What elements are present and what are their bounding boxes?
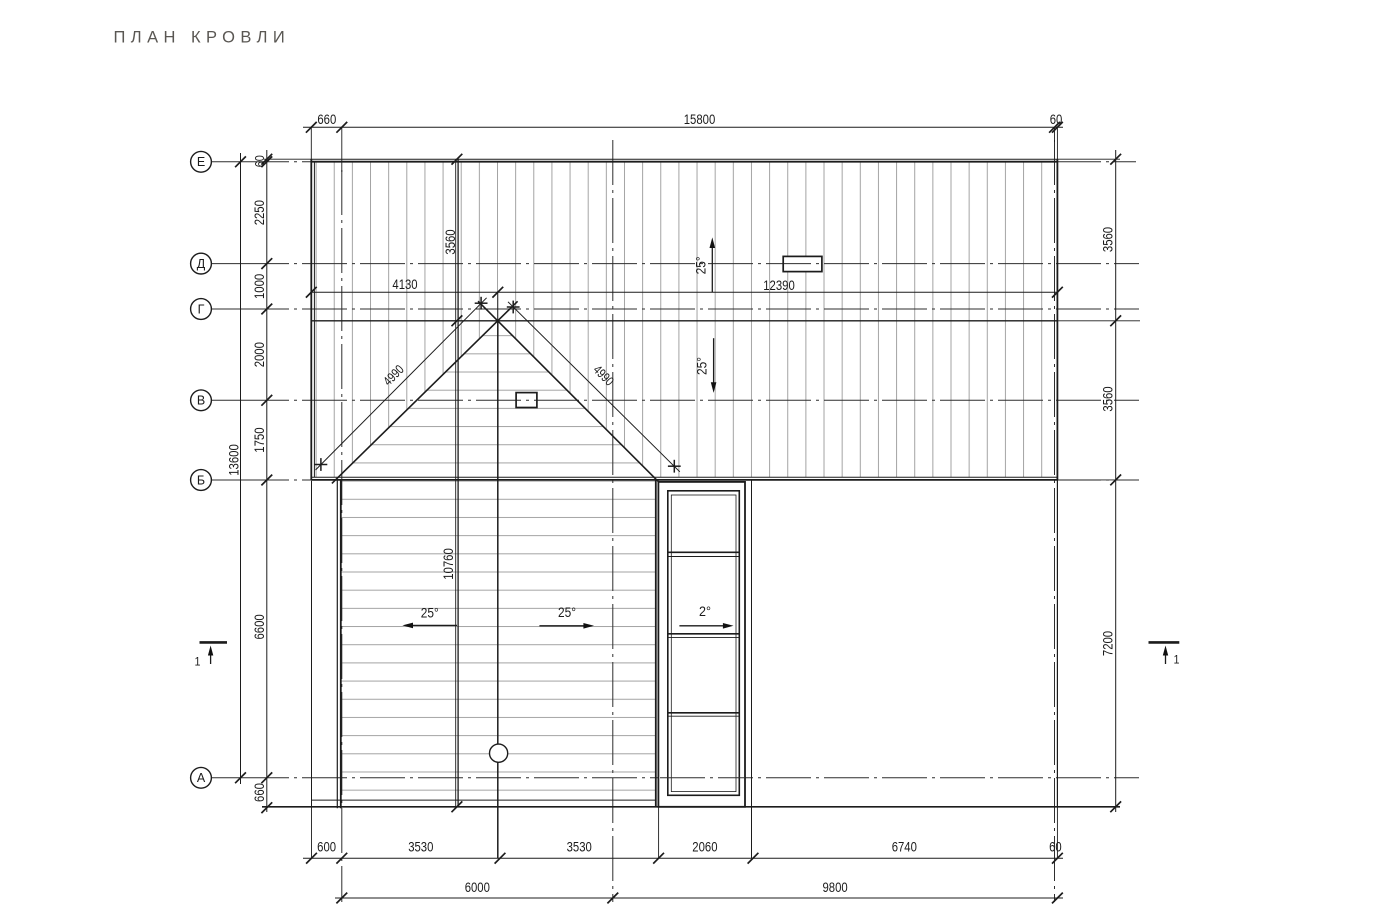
svg-text:1000: 1000 (251, 274, 267, 299)
svg-text:1750: 1750 (251, 427, 267, 452)
svg-text:600: 600 (317, 839, 336, 855)
svg-text:12390: 12390 (763, 277, 795, 293)
svg-text:Г: Г (198, 302, 205, 316)
svg-text:3530: 3530 (408, 839, 433, 855)
svg-text:25°: 25° (693, 357, 709, 375)
svg-text:1: 1 (195, 655, 201, 669)
svg-text:25°: 25° (421, 604, 439, 620)
svg-text:9800: 9800 (823, 879, 848, 895)
svg-text:Е: Е (197, 155, 205, 169)
svg-text:3560: 3560 (1099, 386, 1115, 411)
svg-text:660: 660 (251, 783, 267, 802)
svg-text:2°: 2° (699, 603, 711, 619)
svg-text:6000: 6000 (465, 879, 490, 895)
svg-text:2250: 2250 (251, 200, 267, 225)
svg-text:ПЛАН КРОВЛИ: ПЛАН КРОВЛИ (114, 29, 291, 47)
svg-text:15800: 15800 (684, 111, 716, 127)
svg-text:3560: 3560 (1099, 227, 1115, 252)
svg-text:60: 60 (253, 155, 267, 167)
svg-text:2000: 2000 (251, 342, 267, 367)
svg-text:25°: 25° (558, 604, 576, 620)
svg-text:10760: 10760 (440, 548, 456, 580)
svg-text:3530: 3530 (567, 839, 592, 855)
svg-text:660: 660 (317, 111, 336, 127)
svg-text:3560: 3560 (442, 229, 458, 254)
svg-text:6740: 6740 (892, 839, 917, 855)
svg-text:Д: Д (197, 257, 206, 271)
svg-text:7200: 7200 (1099, 631, 1115, 656)
svg-text:6600: 6600 (251, 614, 267, 639)
svg-text:1: 1 (1174, 653, 1180, 667)
svg-text:В: В (197, 394, 205, 408)
svg-text:Б: Б (197, 473, 205, 487)
svg-text:25°: 25° (693, 256, 709, 274)
svg-text:4130: 4130 (392, 276, 417, 292)
svg-text:А: А (197, 771, 206, 785)
svg-text:60: 60 (1050, 111, 1063, 127)
svg-text:60: 60 (1049, 839, 1062, 855)
svg-text:2060: 2060 (692, 839, 717, 855)
svg-text:13600: 13600 (226, 444, 242, 476)
